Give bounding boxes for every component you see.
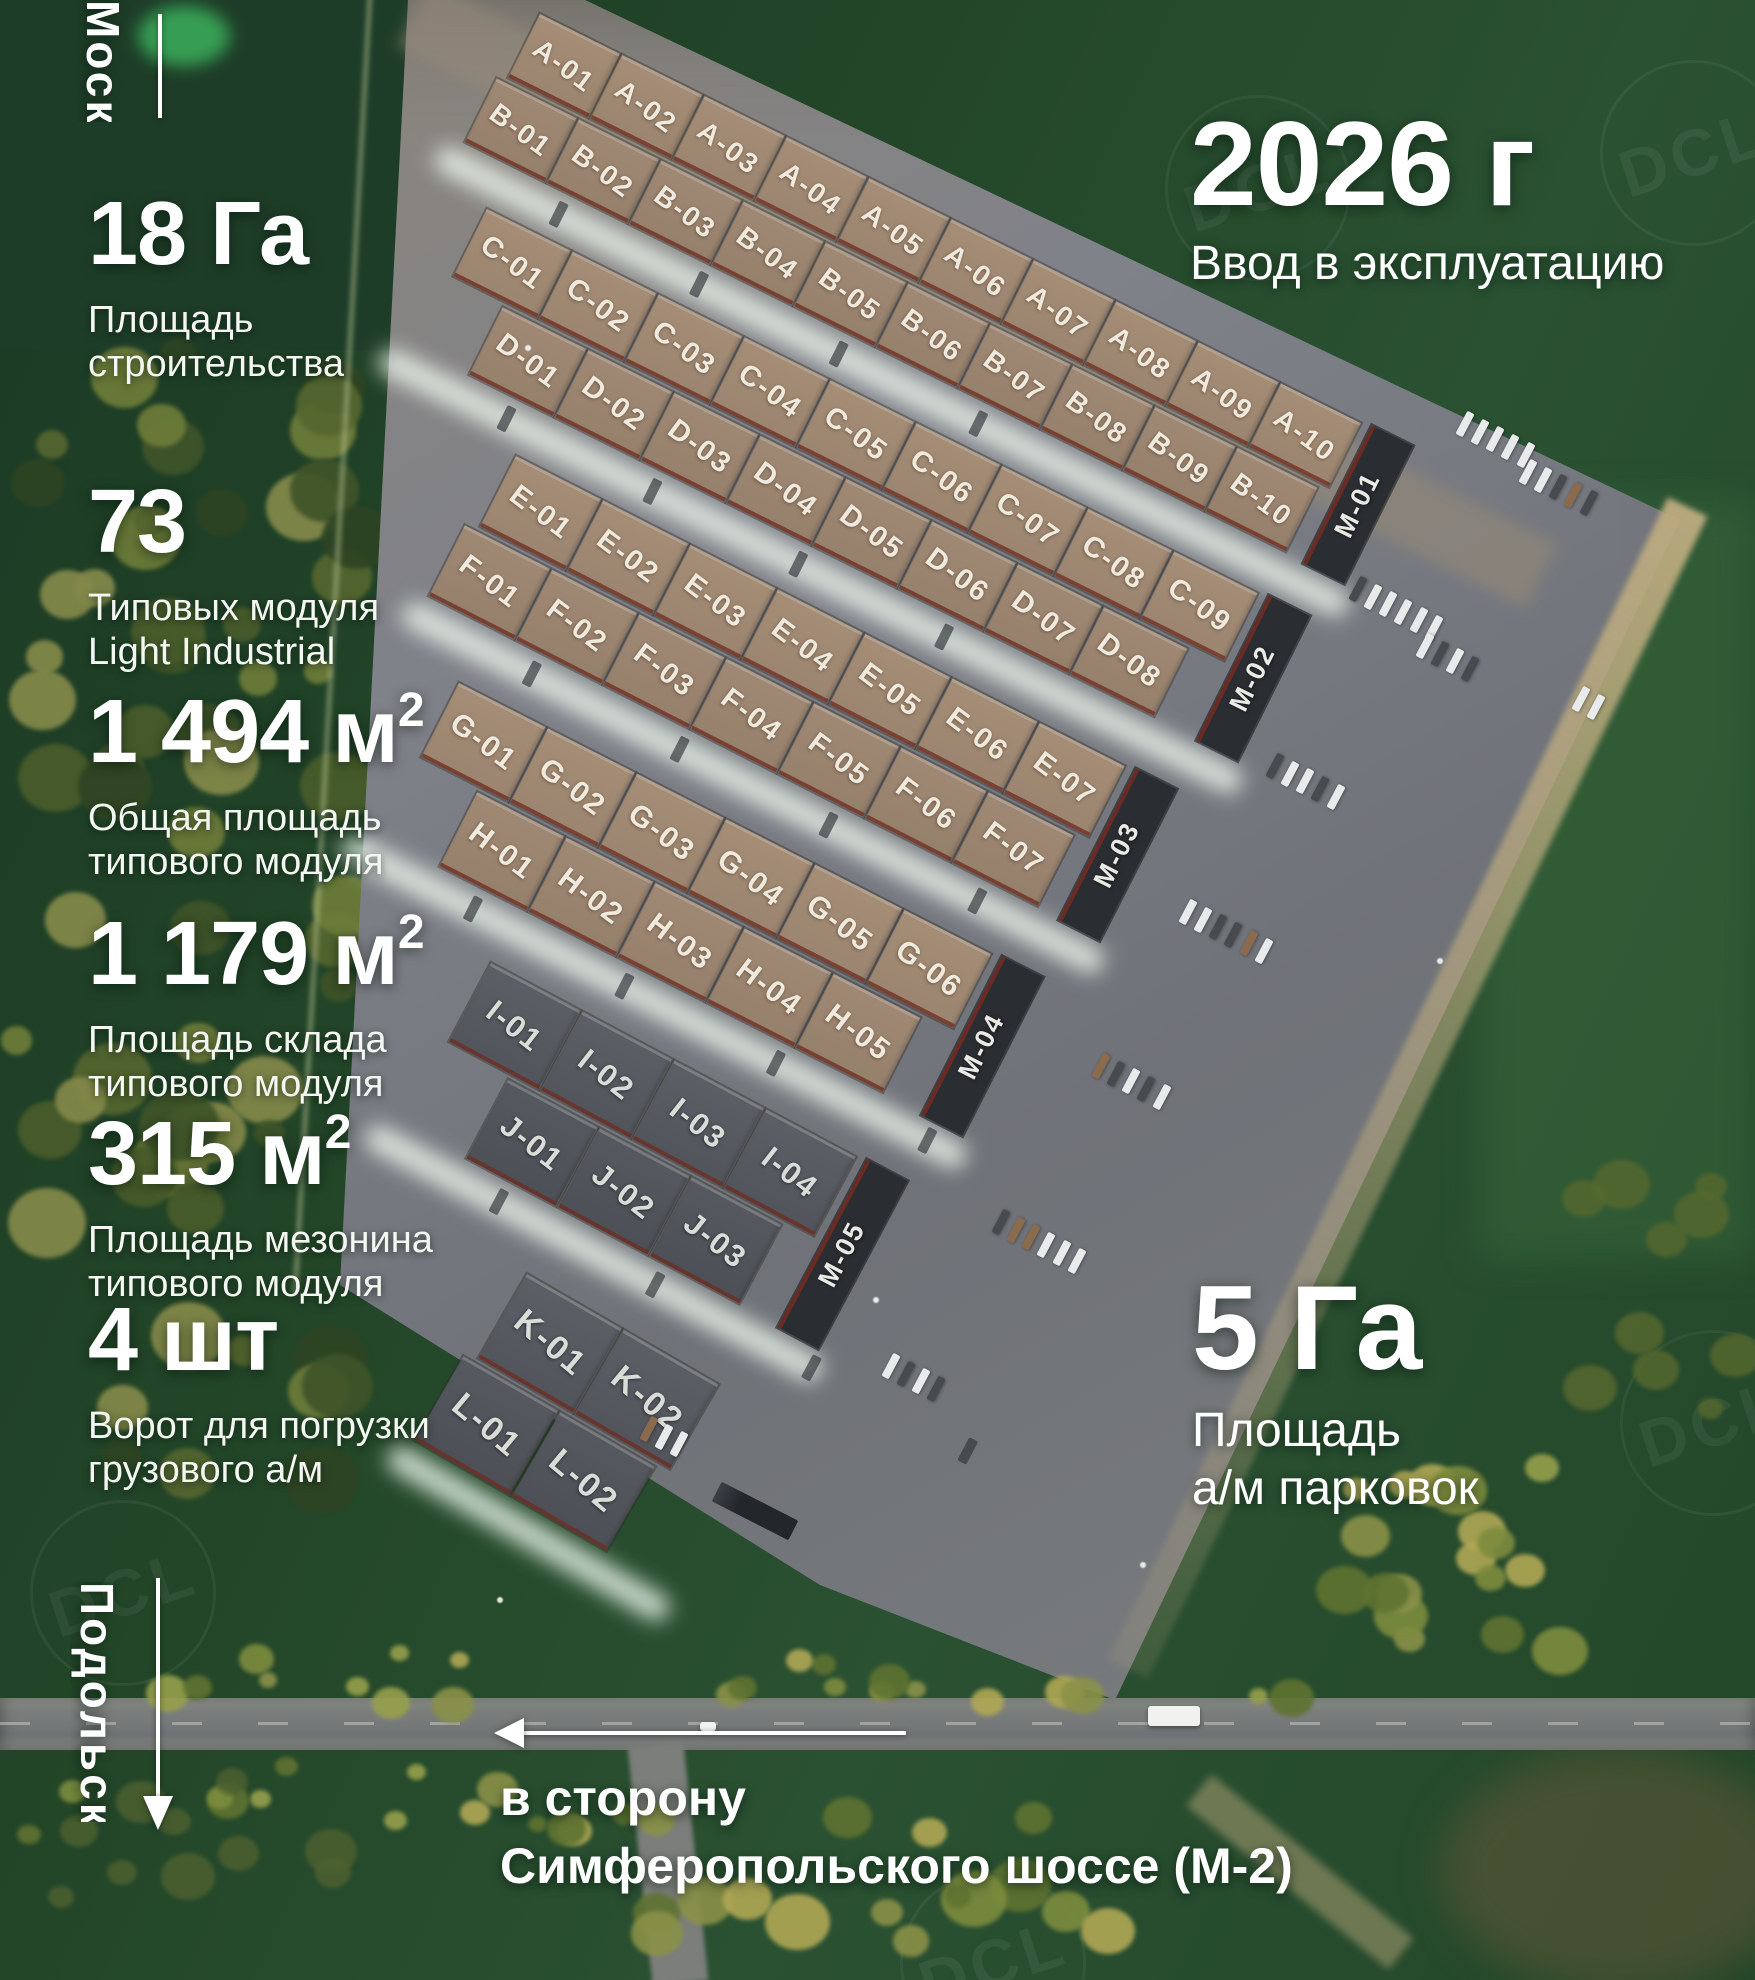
roadside-tree [1674, 1191, 1729, 1238]
stat-label-line: Площадь мезонина [88, 1218, 433, 1262]
stat-value: 315 м2 [88, 1112, 433, 1198]
roadside-tree [1061, 1677, 1104, 1714]
year-label: Ввод в эксплуатацию [1190, 236, 1664, 292]
parking-value: 5 Га [1192, 1268, 1479, 1388]
roadside-tree [728, 1676, 757, 1701]
roadside-tree [1563, 1365, 1618, 1412]
stat: 73Типовых модуляLight Industrial [88, 480, 379, 674]
parking-label-line: Площадь [1192, 1402, 1479, 1460]
light-dot [1437, 958, 1443, 964]
direction-label-moscow: Москва [76, 0, 140, 122]
roadside-tree [450, 1652, 469, 1668]
road-caption-line: в сторону [500, 1768, 1293, 1828]
roadside-tree [1475, 1565, 1505, 1591]
podolsk-label: Подольск [70, 1582, 124, 1822]
roadside-tree [161, 1853, 215, 1899]
stat-label: Площадьстроительства [88, 298, 344, 386]
roadside-tree [146, 1675, 189, 1712]
roadside-tree [315, 1857, 352, 1888]
stat-label: Ворот для погрузкигрузового а/м [88, 1404, 430, 1492]
stat-value: 4 шт [88, 1298, 430, 1384]
light-dot [525, 345, 531, 351]
bright-grass-patch [138, 6, 230, 66]
roadside-tree [384, 1811, 406, 1830]
roadside-tree [1710, 1334, 1755, 1377]
forest-tree [36, 430, 68, 459]
roadside-tree [631, 1911, 684, 1956]
forest-tree [40, 570, 94, 619]
roadside-tree [893, 1925, 930, 1956]
highway-road [0, 1698, 1755, 1750]
roadside-tree [407, 1764, 426, 1780]
parking-label: Площадь а/м парковок [1192, 1402, 1479, 1518]
stat-unit-superscript: 2 [398, 684, 424, 737]
roadside-tree [218, 1836, 260, 1871]
light-dot [1140, 1562, 1146, 1568]
roadside-tree [183, 1675, 212, 1700]
forest-tree [8, 1188, 86, 1258]
road-caption: в сторону Симферопольского шоссе (М-2) [500, 1768, 1293, 1896]
road-caption-line: Симферопольского шоссе (М-2) [500, 1836, 1293, 1896]
stat-label-line: типового модуля [88, 840, 424, 884]
roadside-tree [239, 1644, 274, 1674]
year-value: 2026 г [1190, 104, 1664, 224]
stat: 4 штВорот для погрузкигрузового а/м [88, 1298, 430, 1492]
stat-value: 1 179 м2 [88, 912, 424, 998]
roadside-tree [1362, 1573, 1409, 1613]
stat-label: Площадь складатипового модуля [88, 1018, 424, 1106]
stat-label: Типовых модуляLight Industrial [88, 586, 379, 674]
roadside-tree [1525, 1454, 1558, 1482]
roadside-tree [824, 1678, 846, 1696]
forest-tree [26, 640, 63, 673]
parking-label-line: а/м парковок [1192, 1460, 1479, 1518]
forest-tree [137, 404, 186, 448]
stat-label-line: грузового а/м [88, 1448, 430, 1492]
stat-label-line: Общая площадь [88, 796, 424, 840]
roadside-tree [765, 1894, 830, 1949]
light-dot [497, 1597, 503, 1603]
light-dot [873, 1297, 879, 1303]
roadside-tree [812, 1654, 836, 1675]
roadside-tree [1633, 1350, 1679, 1389]
roadside-tree [1269, 1679, 1314, 1717]
roadside-tree [1477, 1527, 1515, 1559]
roadside-tree [17, 1825, 40, 1845]
stat: 18 ГаПлощадьстроительства [88, 192, 344, 386]
bare-field-patch [1440, 1750, 1755, 1980]
stat-label-line: Типовых модуля [88, 586, 379, 630]
roadside-tree [250, 1790, 271, 1808]
roadside-tree [275, 1757, 297, 1776]
stat: 315 м2Площадь мезонинатипового модуля [88, 1112, 433, 1306]
roadside-tree [1532, 1627, 1589, 1675]
roadside-tree [432, 1687, 474, 1723]
roadside-tree [1481, 1616, 1524, 1652]
stat-value: 1 494 м2 [88, 690, 424, 776]
stat-label-line: Площадь склада [88, 1018, 424, 1062]
stat-label-line: типового модуля [88, 1062, 424, 1106]
stat-label-line: Ворот для погрузки [88, 1404, 430, 1448]
stat-label-line: Light Industrial [88, 630, 379, 674]
roadside-tree [971, 1688, 1004, 1716]
roadside-tree [1698, 1398, 1723, 1419]
parking-callout: 5 Га Площадь а/м парковок [1192, 1268, 1479, 1518]
stat-unit-superscript: 2 [325, 1106, 351, 1159]
forest-tree [11, 459, 65, 508]
forest-tree [9, 670, 76, 730]
moscow-label: Москва [76, 0, 130, 122]
truck-on-road [1148, 1706, 1200, 1726]
roadside-tree [869, 1664, 910, 1699]
roadside-tree [1505, 1554, 1544, 1587]
roadside-tree [786, 1649, 813, 1672]
roadside-tree [871, 1899, 903, 1926]
stat: 1 494 м2Общая площадьтипового модуля [88, 690, 424, 884]
stat-value: 18 Га [88, 192, 344, 278]
roadside-tree [1341, 1515, 1390, 1557]
roadside-tree [1081, 1908, 1135, 1954]
roadside-tree [107, 1860, 137, 1885]
stat: 1 179 м2Площадь складатипового модуля [88, 912, 424, 1106]
car-on-road [700, 1722, 716, 1731]
roadside-tree [1562, 1180, 1606, 1218]
stat-value: 73 [88, 480, 379, 566]
roadside-tree [390, 1645, 409, 1661]
roadside-tree [259, 1672, 277, 1688]
direction-label-podolsk: Подольск [70, 1582, 134, 1822]
stat-label-line: строительства [88, 342, 344, 386]
moscow-direction-line [158, 14, 162, 118]
year-callout: 2026 г Ввод в эксплуатацию [1190, 104, 1664, 292]
stat-label-line: Площадь [88, 298, 344, 342]
roadside-tree [48, 1886, 74, 1908]
stat-unit-superscript: 2 [398, 906, 424, 959]
stat-label: Общая площадьтипового модуля [88, 796, 424, 884]
roadside-tree [346, 1677, 368, 1696]
site-masterplan: DCLDCLDCLDCLDCLDCL A-01A-02A-03A-04A-05A… [0, 0, 1755, 1980]
forest-tree [1, 1026, 33, 1055]
